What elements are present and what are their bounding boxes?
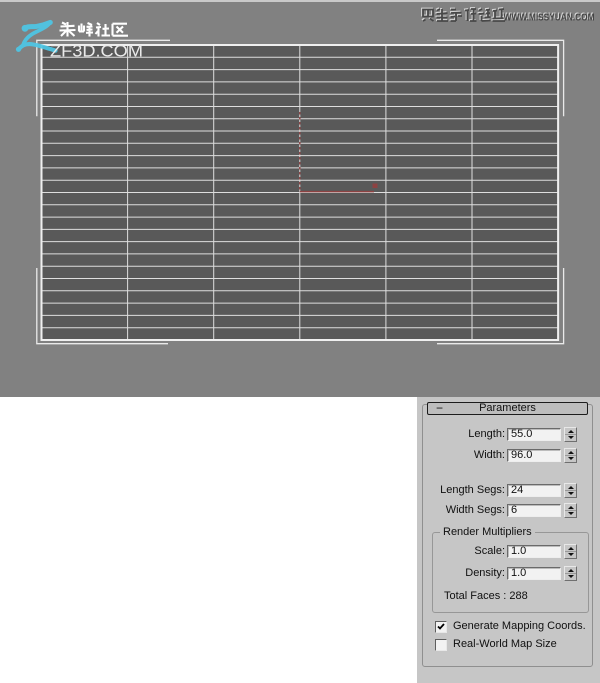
svg-text:WWW.MISSYUAN.COM: WWW.MISSYUAN.COM [504,13,595,24]
svg-text:ZF3D.COM: ZF3D.COM [50,43,143,61]
